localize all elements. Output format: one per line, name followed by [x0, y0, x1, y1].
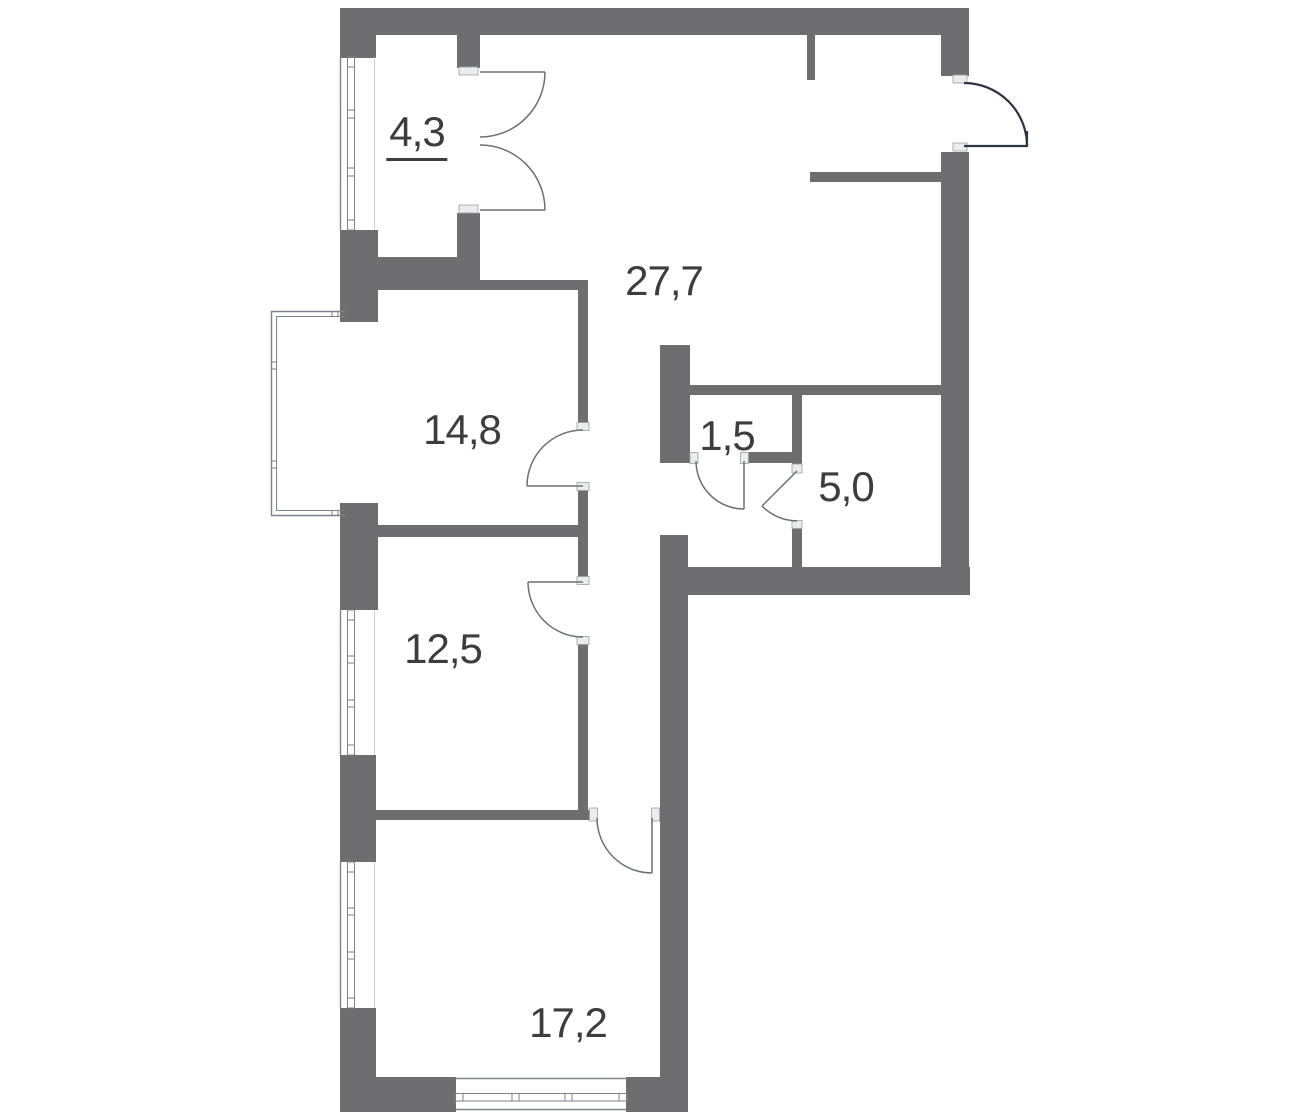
wall-segment [941, 152, 969, 595]
room-label-living-kitchen: 27,7 [625, 260, 703, 302]
wall-segment [688, 385, 941, 395]
window-room-b [341, 610, 375, 755]
room-label-room-c: 17,2 [529, 1002, 607, 1044]
floor-plan-drawing [0, 0, 1300, 1120]
room-c-door [597, 818, 652, 873]
wall-segment [792, 395, 802, 465]
room-label-wc: 1,5 [699, 415, 754, 457]
door-frame [792, 521, 802, 529]
windows [272, 57, 628, 1110]
loggia-glazing-outline [272, 312, 346, 516]
bathroom-door [762, 471, 797, 521]
window-room-c-bottom [455, 1079, 627, 1110]
loggia-double-door [480, 72, 545, 210]
wall-segment [578, 490, 588, 527]
room-label-room-a: 14,8 [423, 409, 501, 451]
wall-segment [660, 345, 690, 463]
wall-segment [340, 503, 378, 610]
window-room-c-left [341, 862, 375, 1008]
door-frame [459, 67, 478, 75]
loggia-area-value: 4,3 [386, 111, 447, 161]
door-frame [690, 453, 698, 464]
walls [340, 8, 970, 1112]
wall-segment [807, 35, 815, 80]
room-label-bathroom: 5,0 [818, 466, 873, 508]
wall-segment [375, 525, 588, 537]
wall-segment [340, 755, 376, 862]
wall-segment [457, 35, 480, 68]
room-a-door [527, 430, 583, 486]
wall-segment [375, 810, 590, 820]
wall-segment [340, 35, 376, 58]
wall-segment [340, 8, 969, 35]
wall-segment [457, 213, 480, 262]
entrance-door [964, 83, 1028, 146]
room-label-loggia: 4,3 [386, 111, 447, 161]
wall-segment [792, 528, 802, 567]
wall-segment [578, 537, 588, 577]
door-frame [953, 75, 967, 83]
wc-door [696, 461, 744, 509]
wall-segment [941, 35, 969, 76]
door-frame [459, 205, 478, 213]
room-label-room-b: 12,5 [404, 628, 482, 670]
room-b-door [528, 582, 583, 637]
wall-segment [660, 535, 688, 1112]
wall-segment [375, 280, 588, 290]
wall-segment [578, 290, 588, 423]
floor-plan: 4,3 27,7 14,8 1,5 5,0 12,5 17,2 [0, 0, 1300, 1120]
wall-segment [578, 644, 588, 810]
wall-segment [340, 1077, 456, 1112]
wall-segment [810, 172, 941, 182]
wall-segment [660, 567, 970, 595]
door-frame [577, 577, 589, 585]
window-loggia-left [341, 57, 375, 230]
